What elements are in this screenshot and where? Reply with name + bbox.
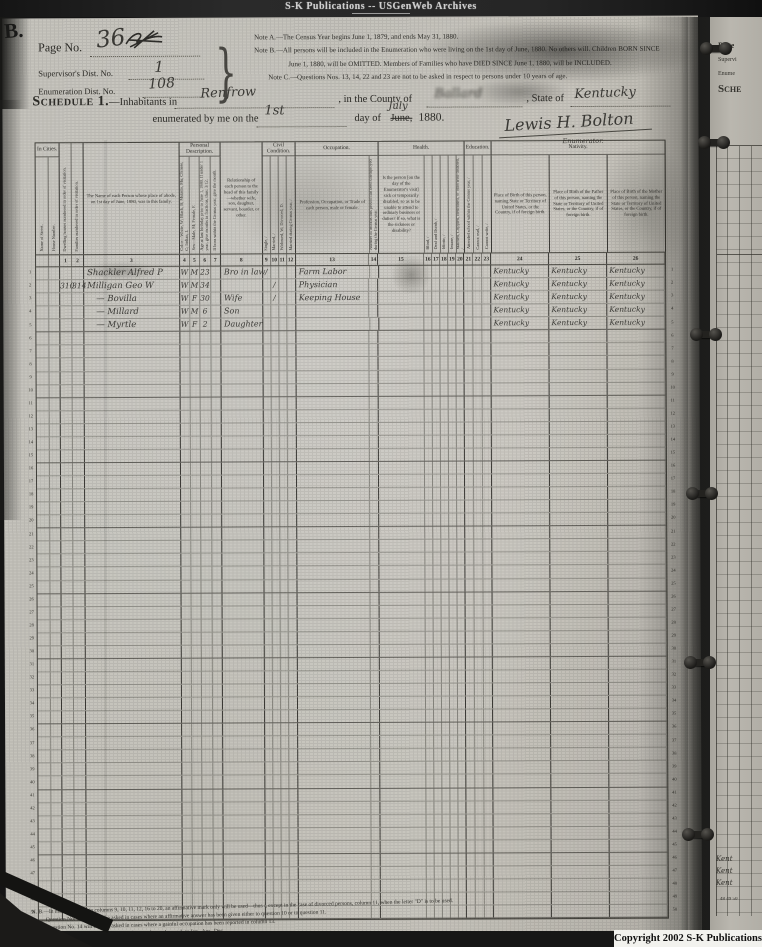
cell-blind bbox=[427, 814, 435, 826]
cell-cannot_write bbox=[483, 318, 492, 330]
cell-occupation bbox=[297, 592, 371, 604]
cell-cannot_read bbox=[475, 566, 484, 578]
cell-maimed bbox=[458, 644, 466, 656]
cell-blind bbox=[427, 827, 435, 839]
cell-widowed bbox=[281, 880, 289, 892]
cell-cannot_write bbox=[483, 383, 492, 395]
cell-street bbox=[38, 646, 51, 658]
cell-cannot_write bbox=[484, 592, 493, 604]
cell-month bbox=[212, 645, 222, 657]
cell-months_unemp bbox=[370, 331, 379, 343]
cell-name bbox=[84, 371, 180, 383]
cell-sex bbox=[192, 815, 202, 827]
cell-month bbox=[212, 554, 222, 566]
cell-age bbox=[201, 606, 212, 618]
cell-blind bbox=[425, 462, 433, 474]
cell-occupation bbox=[297, 501, 371, 513]
cell-idiotic bbox=[442, 723, 450, 735]
cell-dwelling bbox=[63, 881, 75, 893]
cell-blind bbox=[427, 749, 435, 761]
cell-married bbox=[273, 854, 281, 866]
cell-sickness bbox=[380, 579, 426, 591]
cell-birth_mother bbox=[608, 552, 666, 564]
cell-school bbox=[467, 801, 476, 813]
cell-insane bbox=[451, 853, 459, 865]
cell-birth_self bbox=[493, 618, 551, 630]
cell-birth_self bbox=[492, 422, 550, 434]
cell-blind bbox=[426, 579, 434, 591]
cell-birth_mother bbox=[610, 866, 668, 878]
cell-widowed bbox=[279, 436, 287, 448]
col-number-street bbox=[36, 255, 49, 266]
cell-blind bbox=[425, 409, 433, 421]
cell-age bbox=[200, 345, 211, 357]
cell-cannot_write bbox=[484, 670, 493, 682]
cell-occupation bbox=[296, 383, 370, 395]
cell-dwelling bbox=[63, 842, 75, 854]
cell-cannot_read bbox=[474, 383, 483, 395]
cell-idiotic bbox=[441, 305, 449, 317]
cell-blind bbox=[427, 762, 435, 774]
cell-blind bbox=[427, 801, 435, 813]
cell-street bbox=[37, 398, 50, 410]
cell-cannot_read bbox=[476, 814, 485, 826]
cell-family bbox=[73, 555, 85, 567]
cell-name bbox=[86, 802, 182, 814]
cell-deaf bbox=[434, 527, 442, 539]
cell-family bbox=[74, 672, 86, 684]
line-number: 18 bbox=[667, 486, 679, 499]
cell-month bbox=[213, 815, 223, 827]
cell-relationship bbox=[222, 449, 264, 461]
cell-house bbox=[49, 267, 60, 279]
cell-month bbox=[213, 828, 223, 840]
cell-sickness bbox=[379, 305, 425, 317]
cell-street bbox=[38, 672, 51, 684]
cell-widowed bbox=[280, 606, 288, 618]
cell-cannot_write bbox=[484, 631, 493, 643]
cell-months_unemp bbox=[370, 318, 379, 330]
cell-months_unemp bbox=[372, 867, 381, 879]
cell-month bbox=[212, 502, 222, 514]
cell-occupation bbox=[297, 632, 371, 644]
cell-widowed bbox=[281, 815, 289, 827]
line-number: 6 bbox=[25, 332, 35, 345]
line-number: 36 bbox=[668, 721, 680, 734]
cell-maimed bbox=[458, 540, 466, 552]
cell-age bbox=[201, 476, 212, 488]
cell-idiotic bbox=[442, 697, 450, 709]
cell-married bbox=[271, 358, 279, 370]
cell-months_unemp bbox=[370, 292, 379, 304]
cell-dwelling bbox=[61, 385, 73, 397]
cell-occupation bbox=[297, 488, 371, 500]
next-page-grid bbox=[716, 145, 762, 916]
cell-married_cy bbox=[289, 710, 298, 722]
cell-month bbox=[212, 476, 222, 488]
cell-blind bbox=[425, 357, 433, 369]
cell-family bbox=[73, 437, 85, 449]
cell-house bbox=[50, 502, 61, 514]
next-page-supervisor-label: Supervi bbox=[718, 57, 737, 63]
cell-widowed bbox=[281, 737, 289, 749]
cell-street bbox=[36, 346, 49, 358]
cell-months_unemp bbox=[371, 658, 380, 670]
cell-color bbox=[180, 332, 190, 344]
line-number: 48 bbox=[669, 878, 681, 891]
cell-family bbox=[73, 528, 85, 540]
cell-sickness bbox=[381, 749, 427, 761]
cell-color bbox=[182, 724, 192, 736]
cell-cannot_read bbox=[476, 879, 485, 891]
day-rule bbox=[256, 125, 346, 127]
cell-cannot_read bbox=[475, 657, 484, 669]
cell-month bbox=[213, 776, 223, 788]
cell-house bbox=[50, 411, 61, 423]
cell-school bbox=[466, 618, 475, 630]
cell-insane bbox=[451, 788, 459, 800]
cell-cannot_read bbox=[475, 710, 484, 722]
cell-months_unemp bbox=[370, 266, 379, 278]
cell-color bbox=[181, 606, 191, 618]
state-label: , State of bbox=[526, 93, 564, 104]
cell-cannot_write bbox=[485, 775, 494, 787]
cell-dwelling bbox=[62, 672, 74, 684]
cell-age bbox=[201, 632, 212, 644]
cell-school bbox=[465, 488, 474, 500]
cell-sickness bbox=[379, 292, 425, 304]
cell-birth_father bbox=[551, 774, 609, 786]
cell-family bbox=[72, 332, 84, 344]
cell-months_unemp bbox=[372, 815, 381, 827]
cell-sex bbox=[190, 332, 200, 344]
cell-maimed bbox=[458, 723, 466, 735]
cell-month bbox=[212, 436, 222, 448]
cell-color bbox=[181, 554, 191, 566]
cell-deaf bbox=[435, 814, 443, 826]
cell-maimed bbox=[458, 579, 466, 591]
cell-deaf bbox=[435, 853, 443, 865]
cell-name bbox=[85, 541, 181, 553]
cell-age bbox=[201, 580, 212, 592]
line-number: 12 bbox=[26, 410, 36, 423]
cell-street bbox=[38, 803, 51, 815]
cell-sex bbox=[193, 881, 203, 893]
cell-school bbox=[464, 279, 473, 291]
cell-school bbox=[465, 396, 474, 408]
cell-widowed bbox=[280, 475, 288, 487]
cell-maimed bbox=[458, 605, 466, 617]
cell-school bbox=[467, 762, 476, 774]
cell-school bbox=[467, 788, 476, 800]
line-number: 46 bbox=[669, 851, 681, 864]
cell-months_unemp bbox=[371, 684, 380, 696]
cell-insane bbox=[450, 540, 458, 552]
cell-house bbox=[50, 372, 61, 384]
cell-house bbox=[51, 816, 62, 828]
cell-married bbox=[271, 436, 279, 448]
cell-maimed bbox=[457, 488, 465, 500]
cell-cannot_write bbox=[484, 553, 493, 565]
cell-married bbox=[271, 384, 279, 396]
cell-family bbox=[75, 842, 87, 854]
cell-married_cy bbox=[287, 292, 296, 304]
cell-street bbox=[37, 489, 50, 501]
cell-dwelling bbox=[61, 542, 73, 554]
cell-cannot_write bbox=[483, 461, 492, 473]
cell-dwelling bbox=[61, 555, 73, 567]
col-header-married_cy: Married during Census year, / bbox=[287, 156, 296, 253]
cell-months_unemp bbox=[371, 632, 380, 644]
cell-birth_father bbox=[550, 396, 608, 408]
cell-married_cy bbox=[288, 658, 297, 670]
cell-birth_father bbox=[550, 448, 608, 460]
cell-insane bbox=[449, 370, 457, 382]
col-header-house: House Number. bbox=[49, 157, 60, 254]
cell-months_unemp bbox=[370, 279, 379, 291]
cell-birth_self bbox=[493, 605, 551, 617]
cell-idiotic bbox=[441, 331, 449, 343]
cell-birth_self bbox=[492, 383, 550, 395]
cell-sex bbox=[191, 619, 201, 631]
cell-cannot_write bbox=[483, 487, 492, 499]
cell-birth_mother bbox=[607, 330, 665, 342]
cell-blind bbox=[427, 880, 435, 892]
cell-blind bbox=[425, 422, 433, 434]
group-header-occupation: Occupation. bbox=[296, 142, 379, 156]
cell-insane bbox=[451, 827, 459, 839]
cell-sex bbox=[191, 567, 201, 579]
cell-house bbox=[52, 842, 63, 854]
line-number: 13 bbox=[667, 420, 679, 433]
cell-month bbox=[211, 332, 221, 344]
cell-dwelling bbox=[62, 764, 74, 776]
cell-age bbox=[202, 828, 213, 840]
cell-name bbox=[86, 619, 182, 631]
cell-name bbox=[86, 698, 182, 710]
cell-deaf bbox=[433, 357, 441, 369]
cell-maimed bbox=[457, 331, 465, 343]
cell-dwelling bbox=[60, 346, 72, 358]
cell-family bbox=[74, 633, 86, 645]
cell-occupation bbox=[298, 841, 372, 853]
cell-age bbox=[201, 463, 212, 475]
line-number: 16 bbox=[26, 462, 36, 475]
cell-occupation bbox=[297, 540, 371, 552]
cell-single bbox=[265, 854, 273, 866]
cell-sex bbox=[191, 515, 201, 527]
cell-maimed bbox=[459, 775, 467, 787]
cell-school bbox=[466, 710, 475, 722]
cell-cannot_write bbox=[483, 357, 492, 369]
cell-married bbox=[272, 501, 280, 513]
cell-house bbox=[50, 555, 61, 567]
cell-relationship bbox=[222, 502, 264, 514]
cell-dwelling bbox=[60, 333, 72, 345]
cell-relationship bbox=[221, 397, 263, 409]
cell-birth_self bbox=[492, 448, 550, 460]
inhabitants-label: —Inhabitants in bbox=[109, 97, 177, 108]
cell-blind bbox=[425, 383, 433, 395]
line-number: 17 bbox=[26, 475, 36, 488]
cell-street bbox=[38, 620, 51, 632]
cell-widowed bbox=[280, 632, 288, 644]
copyright-text: Copyright 2002 S-K Publications bbox=[614, 933, 762, 944]
cell-color bbox=[181, 567, 191, 579]
cell-color: W bbox=[180, 293, 190, 305]
cell-family bbox=[74, 724, 86, 736]
cell-single bbox=[265, 841, 273, 853]
cell-street bbox=[38, 685, 51, 697]
cell-deaf bbox=[433, 462, 441, 474]
cell-months_unemp bbox=[371, 540, 380, 552]
cell-family bbox=[74, 777, 86, 789]
cell-deaf bbox=[434, 710, 442, 722]
cell-color bbox=[181, 489, 191, 501]
cell-married_cy bbox=[289, 684, 298, 696]
line-number: 3 bbox=[666, 290, 678, 303]
cell-widowed bbox=[279, 305, 287, 317]
cell-occupation bbox=[296, 331, 370, 343]
cell-months_unemp bbox=[370, 344, 379, 356]
cell-occupation bbox=[298, 775, 372, 787]
cell-name bbox=[87, 868, 183, 880]
cell-months_unemp bbox=[370, 423, 379, 435]
cell-house bbox=[51, 803, 62, 815]
cell-month bbox=[211, 306, 221, 318]
cell-school bbox=[465, 461, 474, 473]
cell-relationship bbox=[223, 867, 265, 879]
cell-married_cy bbox=[289, 776, 298, 788]
cell-insane bbox=[449, 501, 457, 513]
cell-single bbox=[265, 867, 273, 879]
cell-relationship bbox=[222, 632, 264, 644]
cell-street bbox=[38, 607, 51, 619]
cell-family bbox=[74, 659, 86, 671]
cell-age bbox=[202, 711, 213, 723]
cell-blind bbox=[427, 736, 435, 748]
cell-months_unemp bbox=[371, 553, 380, 565]
cell-insane bbox=[450, 553, 458, 565]
cell-blind bbox=[426, 605, 434, 617]
line-number: 1 bbox=[666, 264, 678, 277]
cell-birth_self bbox=[493, 539, 551, 551]
cell-family bbox=[73, 411, 85, 423]
cell-occupation bbox=[298, 880, 372, 892]
cell-widowed bbox=[281, 697, 289, 709]
cell-street bbox=[39, 842, 52, 854]
cell-family bbox=[74, 607, 86, 619]
cell-cannot_read bbox=[476, 853, 485, 865]
cell-married_cy bbox=[288, 593, 297, 605]
cell-sickness bbox=[380, 540, 426, 552]
cell-birth_self bbox=[493, 566, 551, 578]
cell-idiotic bbox=[442, 605, 450, 617]
cell-idiotic bbox=[442, 566, 450, 578]
cell-single bbox=[263, 306, 271, 318]
cell-color bbox=[181, 541, 191, 553]
cell-color bbox=[181, 515, 191, 527]
cell-maimed bbox=[457, 409, 465, 421]
cell-family bbox=[73, 568, 85, 580]
cell-married bbox=[272, 619, 280, 631]
cell-cannot_read bbox=[474, 331, 483, 343]
cell-married_cy bbox=[287, 436, 296, 448]
cell-married_cy bbox=[288, 514, 297, 526]
cell-birth_self: Kentucky bbox=[492, 317, 550, 329]
cell-birth_father bbox=[551, 644, 609, 656]
cell-sex bbox=[191, 502, 201, 514]
line-number: 8 bbox=[25, 358, 35, 371]
cell-birth_self bbox=[494, 879, 552, 891]
cell-color bbox=[181, 423, 191, 435]
cell-school bbox=[465, 331, 474, 343]
cell-school bbox=[465, 305, 474, 317]
col-header-age: Age at last birthday prior to June 1, 18… bbox=[200, 157, 211, 254]
cell-cannot_read bbox=[475, 683, 484, 695]
cell-dwelling bbox=[61, 463, 73, 475]
cell-married_cy bbox=[287, 410, 296, 422]
cell-month bbox=[211, 293, 221, 305]
cell-month bbox=[213, 854, 223, 866]
cell-relationship bbox=[222, 580, 264, 592]
cell-sex bbox=[192, 828, 202, 840]
cell-deaf bbox=[433, 279, 441, 291]
cell-month bbox=[214, 881, 224, 893]
cell-month bbox=[211, 280, 221, 292]
cell-house bbox=[50, 398, 61, 410]
line-number: 2 bbox=[666, 277, 678, 290]
scan-edge-topleft bbox=[0, 17, 30, 109]
cell-cannot_read bbox=[474, 409, 483, 421]
cell-relationship: Son bbox=[221, 306, 263, 318]
cell-occupation bbox=[297, 671, 371, 683]
group-header-education: Education. bbox=[465, 141, 492, 155]
cell-color bbox=[182, 698, 192, 710]
line-number: 21 bbox=[667, 525, 679, 538]
cell-cannot_read bbox=[473, 292, 482, 304]
cell-birth_self bbox=[494, 827, 552, 839]
cell-deaf bbox=[435, 762, 443, 774]
cell-blind bbox=[426, 658, 434, 670]
line-number: 23 bbox=[26, 554, 36, 567]
cell-blind bbox=[426, 566, 434, 578]
cell-cannot_read bbox=[475, 592, 484, 604]
cell-school bbox=[465, 435, 474, 447]
binder-spine bbox=[680, 17, 714, 933]
cell-dwelling bbox=[63, 829, 75, 841]
cell-idiotic bbox=[443, 801, 451, 813]
cell-cannot_write bbox=[483, 344, 492, 356]
cell-month bbox=[213, 750, 223, 762]
cell-single bbox=[264, 554, 272, 566]
group-header-in_cities: In Cities. bbox=[36, 143, 60, 157]
cell-blind bbox=[425, 292, 433, 304]
cell-months_unemp bbox=[372, 723, 381, 735]
cell-single bbox=[265, 776, 273, 788]
cell-sex bbox=[192, 711, 202, 723]
cell-birth_self: Kentucky bbox=[491, 291, 549, 303]
cell-cannot_write bbox=[484, 657, 493, 669]
cell-family bbox=[75, 868, 87, 880]
cell-birth_self bbox=[493, 553, 551, 565]
cell-birth_father bbox=[551, 683, 609, 695]
cell-months_unemp bbox=[371, 710, 380, 722]
cell-blind bbox=[426, 540, 434, 552]
cell-maimed bbox=[458, 670, 466, 682]
cell-cannot_read bbox=[475, 540, 484, 552]
cell-sex bbox=[192, 789, 202, 801]
